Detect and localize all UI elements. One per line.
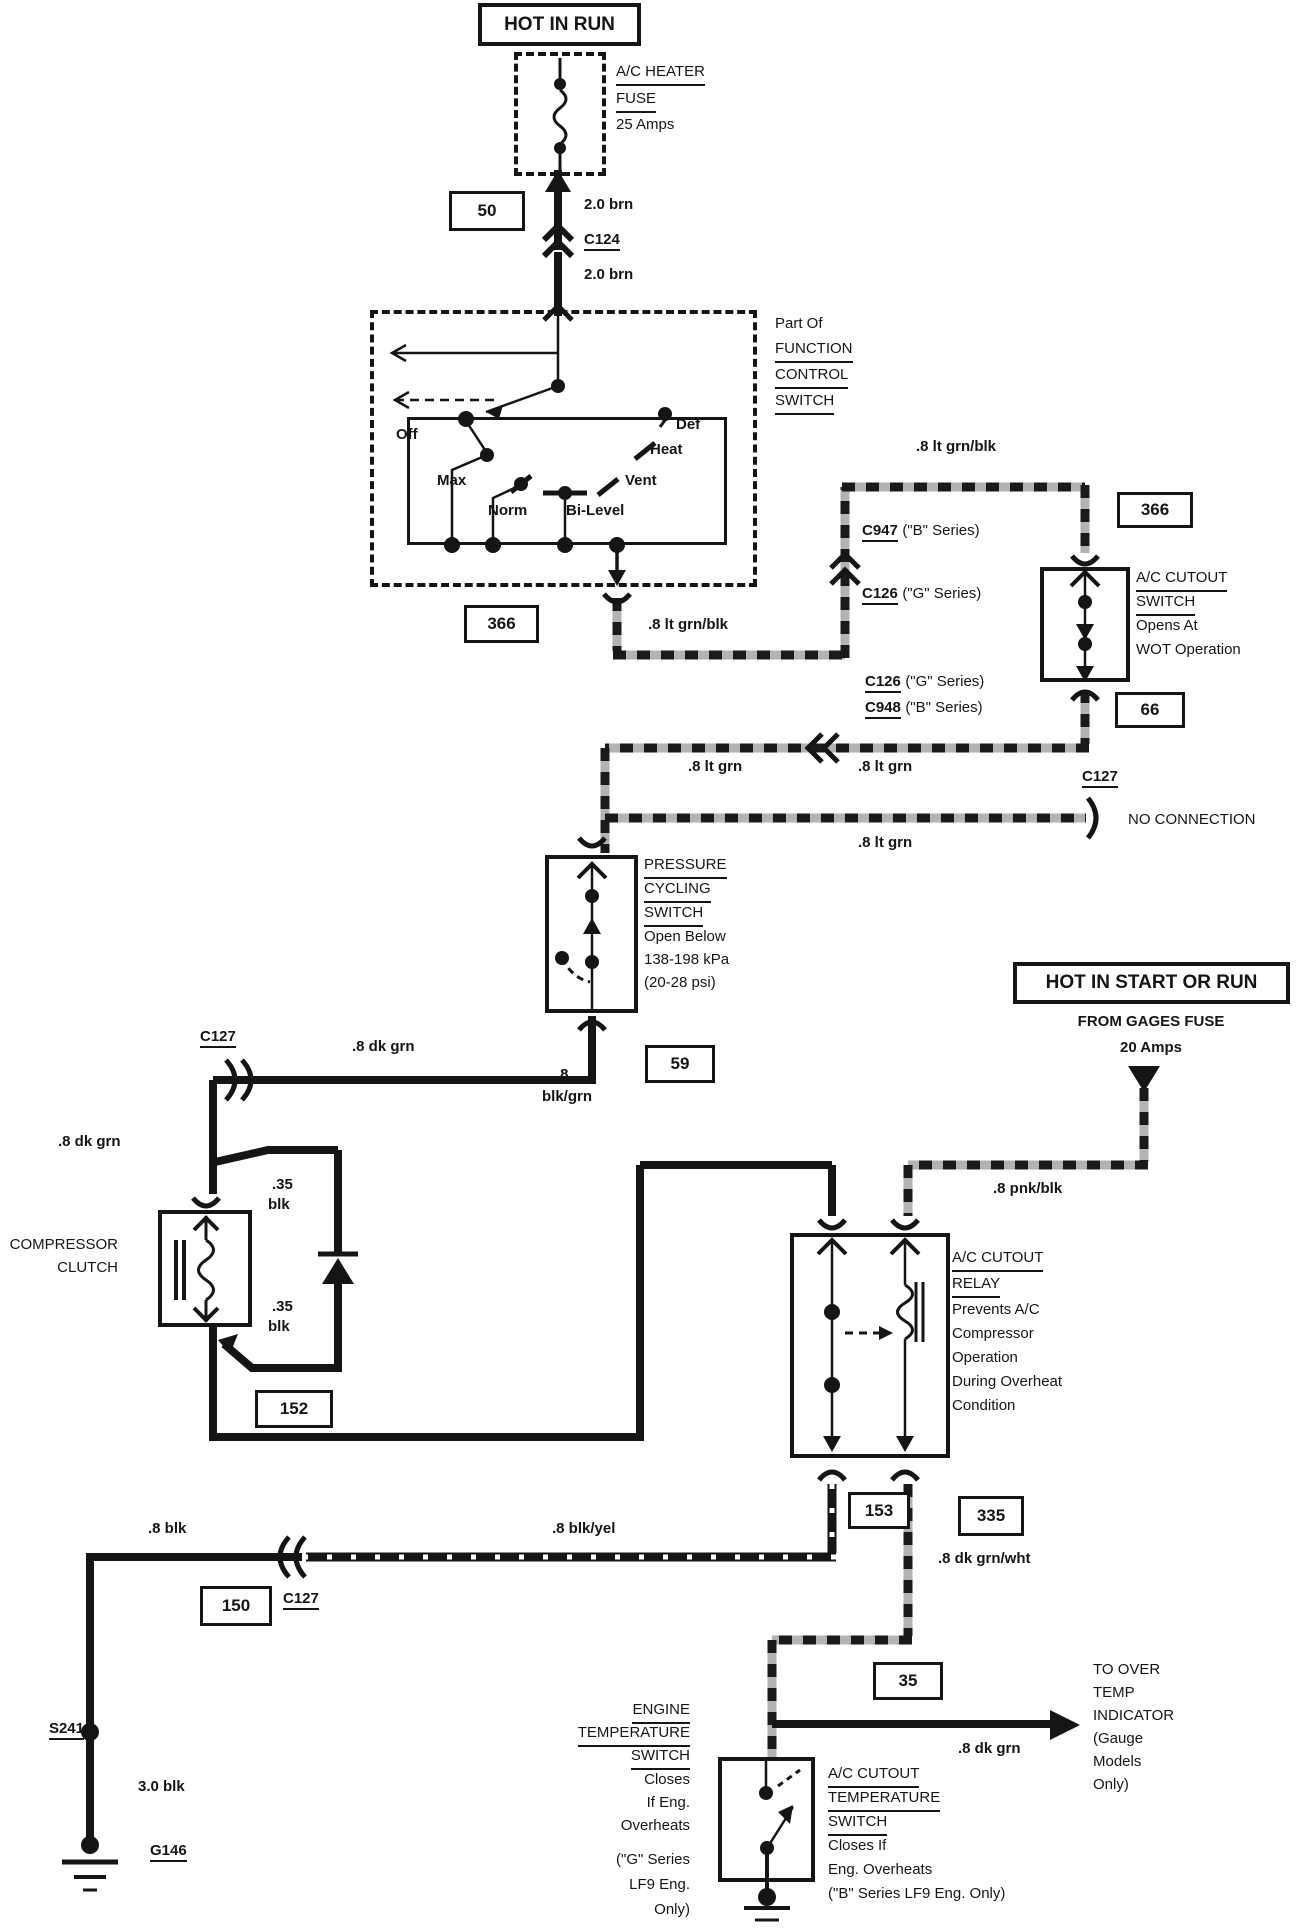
splice-label-s241: S241: [20, 1720, 84, 1740]
switch-position-off: Off: [396, 426, 418, 443]
circuit-box-66: 66: [1115, 692, 1185, 728]
ac-cutout-switch-box: [1040, 567, 1130, 682]
relay-name-2: RELAY: [952, 1272, 1000, 1298]
engine-temp-note-1: ("G" Series: [480, 1848, 690, 1871]
over-temp-line-1: TO OVER: [1093, 1658, 1160, 1681]
fuse-name-line1: A/C HEATER: [616, 60, 705, 86]
over-temp-line-4: (Gauge: [1093, 1727, 1143, 1750]
relay-desc-2: Compressor: [952, 1322, 1034, 1345]
no-connection-label: NO CONNECTION: [1128, 808, 1256, 831]
pressure-switch-name-2: CYCLING: [644, 877, 711, 903]
wot-switch-name-2: SWITCH: [1136, 590, 1195, 616]
engine-temp-name-3: SWITCH: [480, 1744, 690, 1770]
ac-temp-desc-1: Closes If: [828, 1834, 886, 1857]
connector-label-c948: C948 ("B" Series): [865, 699, 983, 719]
switch-position-vent: Vent: [625, 472, 657, 489]
ac-cutout-relay-box: [790, 1233, 950, 1458]
switch-position-bilevel: Bi-Level: [566, 502, 624, 519]
clutch-name-1: COMPRESSOR: [0, 1233, 118, 1256]
diode-symbol: [318, 1254, 358, 1284]
banner-hot-in-run: HOT IN RUN: [478, 3, 641, 46]
ground-symbol-temp-switch: [744, 1908, 790, 1920]
switch-position-def: Def: [676, 416, 700, 433]
over-temp-arrowhead: [1050, 1710, 1080, 1740]
engine-temp-note-2: LF9 Eng.: [480, 1873, 690, 1896]
wire-label-dk-grn-c: .8 dk grn: [958, 1740, 1021, 1757]
connector-label-c127-no-connection: C127: [1082, 768, 1118, 788]
pressure-switch-desc-3: (20-28 psi): [644, 971, 716, 994]
switch-position-norm: Norm: [488, 502, 527, 519]
wire-label-lt-grn-b: .8 lt grn: [858, 758, 912, 775]
over-temp-line-5: Models: [1093, 1750, 1141, 1773]
wire-label-brn-lower: 2.0 brn: [584, 266, 633, 283]
circuit-box-59: 59: [645, 1045, 715, 1083]
engine-temp-desc-1: Closes: [480, 1768, 690, 1791]
over-temp-line-2: TEMP: [1093, 1681, 1135, 1704]
wire-label-pnk-blk: .8 pnk/blk: [993, 1180, 1062, 1197]
switch-position-max: Max: [437, 472, 466, 489]
relay-name-1: A/C CUTOUT: [952, 1246, 1043, 1272]
circuit-box-153: 153: [848, 1492, 910, 1529]
switch-position-heat: Heat: [650, 441, 683, 458]
wot-switch-desc-2: WOT Operation: [1136, 638, 1241, 661]
wire-label-blk-grn-1: .8: [556, 1066, 569, 1083]
wire-label-dk-grn-wht: .8 dk grn/wht: [938, 1550, 1031, 1567]
engine-temp-desc-3: Overheats: [480, 1814, 690, 1837]
relay-desc-4: During Overheat: [952, 1370, 1062, 1393]
function-switch-caption-2: FUNCTION: [775, 337, 853, 363]
wire-label-lt-grn-blk-b: .8 lt grn/blk: [916, 438, 996, 455]
function-switch-caption-4: SWITCH: [775, 389, 834, 415]
pressure-cycling-switch-box: [545, 855, 638, 1013]
wire-label-blk: .8 blk: [148, 1520, 186, 1537]
clutch-name-2: CLUTCH: [0, 1256, 118, 1279]
circuit-box-366-right: 366: [1117, 492, 1193, 528]
over-temp-line-6: Only): [1093, 1773, 1129, 1796]
wire-label-lt-grn-blk-a: .8 lt grn/blk: [648, 616, 728, 633]
ac-temp-name-3: SWITCH: [828, 1810, 887, 1836]
wire-lt-grn: [605, 690, 1089, 853]
over-temp-line-3: INDICATOR: [1093, 1704, 1174, 1727]
connector-label-c124: C124: [584, 231, 620, 251]
relay-desc-1: Prevents A/C: [952, 1298, 1040, 1321]
wire-label-35blk-bot-1: .35: [272, 1298, 293, 1315]
wire-label-dk-grn-a: .8 dk grn: [352, 1038, 415, 1055]
circuit-box-50: 50: [449, 191, 525, 231]
ground-symbol-g146: [62, 1862, 118, 1890]
ac-temp-desc-2: Eng. Overheats: [828, 1858, 932, 1881]
circuit-box-366-left: 366: [464, 605, 539, 643]
connector-c127-no-connection-end: [1088, 798, 1096, 838]
ground-label-g146: G146: [150, 1842, 187, 1862]
relay-desc-3: Operation: [952, 1346, 1018, 1369]
wire-label-lt-grn-c: .8 lt grn: [858, 834, 912, 851]
pressure-switch-desc-2: 138-198 kPa: [644, 948, 729, 971]
pressure-switch-desc-1: Open Below: [644, 925, 726, 948]
function-switch-caption-3: CONTROL: [775, 363, 848, 389]
circuit-box-35: 35: [873, 1662, 943, 1700]
connector-label-c947: C947 ("B" Series): [862, 522, 980, 542]
wire-label-blk-yel: .8 blk/yel: [552, 1520, 615, 1537]
compressor-clutch-box: [158, 1210, 252, 1327]
ac-temp-name-2: TEMPERATURE: [828, 1786, 940, 1812]
wiring-diagram-page: HOT IN RUN 50 366 366 66 59 HOT IN START…: [0, 0, 1312, 1928]
engine-temp-note-3: Only): [480, 1898, 690, 1921]
engine-temp-desc-2: If Eng.: [480, 1791, 690, 1814]
circuit-box-152: 152: [255, 1390, 333, 1428]
wot-switch-name-1: A/C CUTOUT: [1136, 566, 1227, 592]
wire-label-brn-upper: 2.0 brn: [584, 196, 633, 213]
gages-fuse-rating: 20 Amps: [1041, 1036, 1261, 1059]
ac-temp-name-1: A/C CUTOUT: [828, 1762, 919, 1788]
banner-hot-in-start-or-run: HOT IN START OR RUN: [1013, 962, 1290, 1004]
circuit-box-150: 150: [200, 1586, 272, 1626]
wire-label-35blk-bot-2: blk: [268, 1318, 290, 1335]
gages-fuse-from-label: FROM GAGES FUSE: [1041, 1010, 1261, 1033]
wire-label-3-0-blk: 3.0 blk: [138, 1778, 185, 1795]
circuit-box-335: 335: [958, 1496, 1024, 1536]
connector-label-c127-low: C127: [283, 1590, 319, 1610]
wot-switch-desc-1: Opens At: [1136, 614, 1198, 637]
relay-desc-5: Condition: [952, 1394, 1015, 1417]
function-switch-caption-1: Part Of: [775, 312, 823, 335]
gages-fuse-arrowhead: [1128, 1066, 1160, 1092]
pressure-switch-name-1: PRESSURE: [644, 853, 727, 879]
wire-label-35blk-top-1: .35: [272, 1176, 293, 1193]
engine-temp-switch-box: [718, 1757, 815, 1882]
connector-label-c127-mid: C127: [200, 1028, 236, 1048]
wire-label-lt-grn-a: .8 lt grn: [688, 758, 742, 775]
ac-temp-desc-3: ("B" Series LF9 Eng. Only): [828, 1882, 1005, 1905]
fuse-rating: 25 Amps: [616, 113, 674, 136]
wire-label-35blk-top-2: blk: [268, 1196, 290, 1213]
wire-label-blk-grn-2: blk/grn: [542, 1088, 592, 1105]
connector-label-c126-lower: C126 ("G" Series): [865, 673, 984, 693]
ac-heater-fuse-box: [514, 52, 606, 176]
wire-label-dk-grn-b: .8 dk grn: [58, 1133, 121, 1150]
fuse-name-line2: FUSE: [616, 87, 656, 113]
connector-label-c126-upper: C126 ("G" Series): [862, 585, 981, 605]
pressure-switch-name-3: SWITCH: [644, 901, 703, 927]
